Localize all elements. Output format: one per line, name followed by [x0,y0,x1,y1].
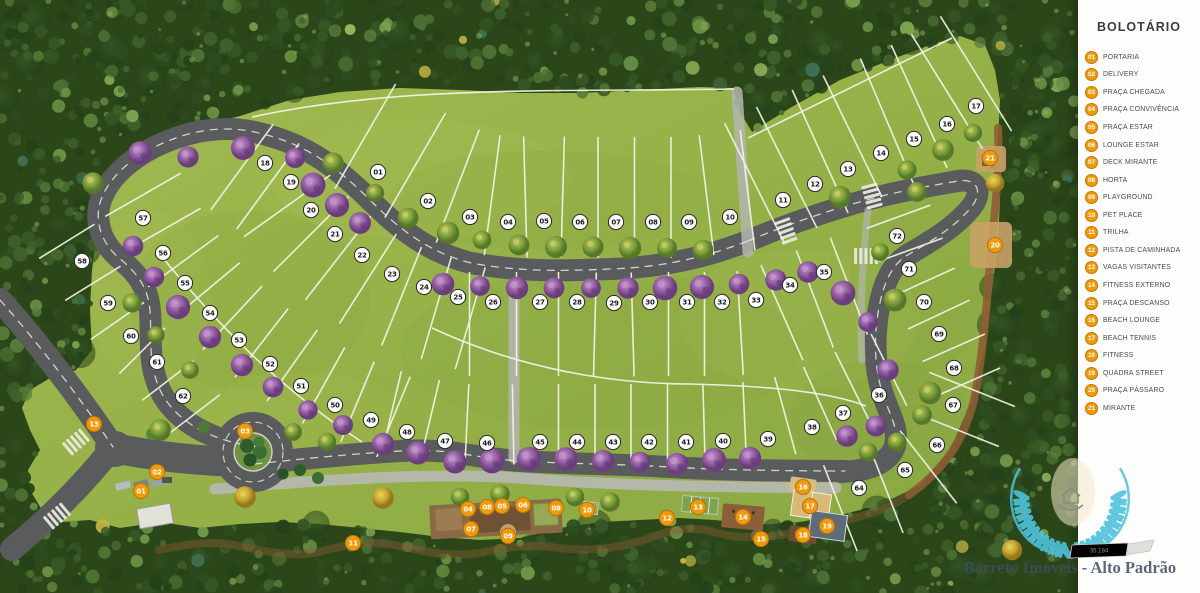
green-tree [932,139,954,161]
amenity-marker: 14 [735,509,750,524]
legend-badge: 04 [1085,103,1098,116]
legend-label: PRAÇA CONVIVÊNCIA [1103,106,1179,113]
green-tree [907,182,927,202]
legend-item: 07DECK MIRANTE [1085,156,1157,169]
purple-tree [544,278,565,299]
legend-item: 08HORTA [1085,174,1127,187]
lot-marker: 43 [605,434,620,449]
lot-marker: 66 [929,437,944,452]
lot-marker: 62 [175,388,190,403]
svg-text:55: 55 [180,279,190,287]
amenity-marker: 04 [460,501,475,516]
lot-marker: 45 [532,434,547,449]
legend-item: 20PRAÇA PÁSSARO [1085,384,1164,397]
legend-item: 16BEACH LOUNGE [1085,314,1160,327]
svg-text:18: 18 [798,531,808,539]
green-tree [912,405,932,425]
green-tree [919,382,941,404]
purple-tree [372,433,394,455]
svg-text:22: 22 [357,251,367,259]
legend-item: 03PRAÇA CHEGADA [1085,86,1165,99]
legend-item: 09PLAYGROUND [1085,191,1153,204]
purple-tree [123,236,144,257]
green-tree [693,240,714,261]
svg-text:69: 69 [934,330,944,338]
lot-marker: 13 [840,161,855,176]
purple-tree [858,312,878,332]
purple-tree [630,452,651,473]
legend-label: QUADRA STREET [1103,370,1164,377]
green-tree [284,423,302,441]
lot-marker: 23 [384,266,399,281]
amenity-marker: 08 [479,499,494,514]
amenity-marker: 13 [86,416,101,431]
lot-marker: 09 [681,214,696,229]
purple-tree [166,295,190,319]
svg-text:51: 51 [296,382,306,390]
purple-tree [592,450,614,472]
lot-marker: 42 [641,434,656,449]
legend-badge: 20 [1085,384,1098,397]
amenity-marker: 06 [515,497,530,512]
amenity-marker: 15 [753,531,768,546]
purple-tree [128,141,151,164]
lot-marker: 04 [500,214,515,229]
lot-marker: 53 [231,332,246,347]
svg-text:38: 38 [807,423,817,431]
lot-marker: 29 [606,295,621,310]
svg-text:04: 04 [503,218,513,226]
svg-text:11: 11 [778,196,788,204]
svg-text:04: 04 [463,505,473,513]
legend-label: PLAYGROUND [1103,194,1153,201]
svg-text:40: 40 [718,437,728,445]
lot-marker: 57 [135,210,150,225]
svg-text:17: 17 [805,502,815,510]
svg-text:23: 23 [387,270,397,278]
lot-marker: 47 [437,433,452,448]
purple-tree [432,273,455,296]
purple-tree [470,276,490,296]
svg-text:19: 19 [822,522,832,530]
svg-text:54: 54 [205,309,215,317]
svg-text:53: 53 [234,336,244,344]
svg-text:02: 02 [152,468,162,476]
purple-tree [506,277,528,299]
yellow-tree [234,486,256,508]
legend-item: 19QUADRA STREET [1085,367,1164,380]
legend-item: 14FITNESS EXTERNO [1085,279,1170,292]
svg-text:12: 12 [662,514,672,522]
svg-text:15: 15 [909,135,919,143]
yellow-tree [372,487,393,508]
amenity-marker: 17 [802,498,817,513]
green-tree [888,433,907,452]
svg-text:06: 06 [575,218,585,226]
amenity-marker: 02 [149,464,164,479]
lot-marker: 65 [897,462,912,477]
lot-marker: 69 [931,326,946,341]
legend-item: 21MIRANTE [1085,402,1135,415]
svg-text:60: 60 [126,332,136,340]
legend-item: 17BEACH TENNIS [1085,332,1156,345]
svg-text:06: 06 [518,501,528,509]
svg-text:21: 21 [330,230,340,238]
svg-text:59: 59 [103,299,113,307]
amenity-marker: 16 [795,479,810,494]
svg-text:48: 48 [402,428,412,436]
green-tree [473,231,492,250]
svg-text:16: 16 [942,120,952,128]
svg-text:18: 18 [260,159,270,167]
svg-text:07: 07 [466,525,476,533]
green-tree [437,222,460,245]
purple-tree [617,277,638,298]
legend-badge: 08 [1085,174,1098,187]
legend-label: PORTARIA [1103,54,1139,61]
site-plan-map: 0102030405060708091011121314151617181920… [0,0,1078,593]
svg-text:08: 08 [551,504,561,512]
legend-badge: 19 [1085,367,1098,380]
legend-item: 06LOUNGE ESTAR [1085,139,1159,152]
svg-text:24: 24 [419,283,429,291]
svg-text:02: 02 [423,197,433,205]
svg-text:61: 61 [152,358,162,366]
lot-marker: 36 [871,387,886,402]
purple-tree [144,267,164,287]
purple-tree [298,400,317,419]
svg-text:72: 72 [892,232,902,240]
green-tree [859,443,878,462]
lot-marker: 14 [873,145,888,160]
purple-tree [581,278,601,298]
lot-marker: 31 [679,294,694,309]
lot-marker: 05 [536,213,551,228]
legend-badge: 01 [1085,51,1098,64]
legend-label: LOUNGE ESTAR [1103,142,1159,149]
svg-text:28: 28 [572,298,582,306]
lot-marker: 64 [851,480,866,495]
legend-badge: 06 [1085,139,1098,152]
lot-marker: 61 [149,354,164,369]
amenity-marker: 01 [133,483,148,498]
svg-text:08: 08 [648,218,658,226]
svg-text:20: 20 [306,206,316,214]
svg-text:08: 08 [482,503,492,511]
lot-marker: 37 [835,405,850,420]
svg-text:13: 13 [843,165,853,173]
lot-marker: 34 [782,277,797,292]
svg-text:09: 09 [503,532,513,540]
legend-item: 15PRAÇA DESCANSO [1085,297,1170,310]
lot-marker: 39 [760,431,775,446]
lot-marker: 55 [177,275,192,290]
lot-marker: 52 [262,356,277,371]
legend-item: 11TRILHA [1085,226,1129,239]
purple-tree [666,453,688,475]
yellow-tree [1002,540,1022,560]
purple-tree [333,415,353,435]
svg-text:42: 42 [644,438,654,446]
legend-item: 10PET PLACE [1085,209,1143,222]
legend-badge: 02 [1085,68,1098,81]
lot-marker: 10 [722,209,737,224]
svg-text:26: 26 [488,298,498,306]
svg-text:21: 21 [985,154,995,162]
svg-text:34: 34 [785,281,795,289]
legend-badge: 07 [1085,156,1098,169]
purple-tree [739,447,761,469]
lot-marker: 03 [462,209,477,224]
purple-tree [690,275,714,299]
svg-text:70: 70 [919,298,929,306]
lot-marker: 20 [303,202,318,217]
green-tree [122,293,141,312]
legend-label: PRAÇA ESTAR [1103,124,1153,131]
svg-text:35: 35 [819,268,829,276]
legend-badge: 03 [1085,86,1098,99]
lot-marker: 35 [816,264,831,279]
svg-text:27: 27 [535,298,545,306]
amenity-marker: 08 [548,500,563,515]
green-tree [829,186,851,208]
svg-text:10: 10 [725,213,735,221]
purple-tree [797,261,818,282]
lot-marker: 70 [916,294,931,309]
lot-marker: 22 [354,247,369,262]
svg-text:29: 29 [609,299,619,307]
legend-label: PRAÇA PÁSSARO [1103,387,1164,394]
svg-text:01: 01 [136,487,146,495]
purple-tree [480,449,505,474]
svg-text:13: 13 [89,420,99,428]
lot-marker: 21 [327,226,342,241]
svg-text:33: 33 [751,296,761,304]
purple-tree [285,148,305,168]
lot-marker: 68 [946,360,961,375]
lot-marker: 71 [901,261,916,276]
amenity-marker: 18 [795,527,810,542]
lot-marker: 50 [327,397,342,412]
amenity-marker: 20 [987,237,1002,252]
amenity-marker: 12 [659,510,674,525]
green-tree [322,152,343,173]
lot-marker: 15 [906,131,921,146]
svg-text:25: 25 [453,293,463,301]
svg-text:03: 03 [465,213,475,221]
svg-text:64: 64 [854,484,864,492]
lot-marker: 38 [804,419,819,434]
lot-marker: 27 [532,294,547,309]
amenity-marker: 13 [690,499,705,514]
lot-marker: 41 [678,434,693,449]
amenity-marker: 19 [819,518,834,533]
legend-badge: 12 [1085,244,1098,257]
lot-marker: 54 [202,305,217,320]
legend-label: DELIVERY [1103,71,1139,78]
legend-label: PET PLACE [1103,212,1143,219]
amenity-marker: 11 [345,535,360,550]
purple-tree [554,447,578,471]
svg-text:65: 65 [900,466,910,474]
purple-tree [729,274,750,295]
lot-marker: 33 [748,292,763,307]
green-tree [657,238,677,258]
purple-tree [702,448,726,472]
svg-text:66: 66 [932,441,942,449]
legend-panel: BOLOTÁRIO 01PORTARIA02DELIVERY03PRAÇA CH… [1078,0,1200,593]
lot-marker: 02 [420,193,435,208]
lot-marker: 11 [775,192,790,207]
lot-marker: 12 [807,176,822,191]
legend-item: 02DELIVERY [1085,68,1139,81]
svg-text:11: 11 [348,539,358,547]
legend-badge: 10 [1085,209,1098,222]
legend-label: VAGAS VISITANTES [1103,264,1171,271]
purple-tree [877,359,898,380]
svg-text:68: 68 [949,364,959,372]
green-tree [871,243,889,261]
svg-text:45: 45 [535,438,545,446]
legend-badge: 15 [1085,297,1098,310]
svg-text:14: 14 [738,513,748,521]
lot-marker: 32 [714,294,729,309]
legend-label: HORTA [1103,177,1127,184]
svg-text:01: 01 [373,168,383,176]
green-tree [366,184,384,202]
svg-text:14: 14 [876,149,886,157]
svg-text:30: 30 [645,298,655,306]
legend-item: 01PORTARIA [1085,51,1139,64]
legend-badge: 09 [1085,191,1098,204]
green-tree [509,235,530,256]
svg-text:52: 52 [265,360,275,368]
svg-text:46: 46 [482,439,492,447]
svg-text:37: 37 [838,409,848,417]
lot-marker: 58 [74,253,89,268]
green-tree [181,361,199,379]
lot-marker: 28 [569,294,584,309]
legend-item: 05PRAÇA ESTAR [1085,121,1153,134]
legend-badge: 05 [1085,121,1098,134]
svg-text:44: 44 [572,438,582,446]
purple-tree [231,354,253,376]
legend-label: BEACH LOUNGE [1103,317,1160,324]
lot-marker: 18 [257,155,272,170]
purple-tree [349,212,371,234]
legend-label: DECK MIRANTE [1103,159,1157,166]
amenity-marker: 09 [500,528,515,543]
legend-item: 13VAGAS VISITANTES [1085,261,1171,274]
svg-text:56: 56 [158,249,168,257]
svg-text:05: 05 [539,217,549,225]
purple-tree [301,173,326,198]
lot-marker: 60 [123,328,138,343]
amenity-marker: 10 [579,502,594,517]
legend-label: BEACH TENNIS [1103,335,1156,342]
green-tree [884,289,907,312]
svg-text:50: 50 [330,401,340,409]
legend-badge: 13 [1085,261,1098,274]
lot-marker: 46 [479,435,494,450]
lot-marker: 49 [363,412,378,427]
purple-tree [831,281,856,306]
green-tree [147,326,164,343]
legend-label: MIRANTE [1103,405,1135,412]
lot-marker: 48 [399,424,414,439]
purple-tree [263,377,284,398]
legend-badge: 14 [1085,279,1098,292]
lot-marker: 56 [155,245,170,260]
svg-text:09: 09 [684,218,694,226]
legend-label: TRILHA [1103,229,1129,236]
lot-marker: 07 [608,214,623,229]
legend-item: 04PRAÇA CONVIVÊNCIA [1085,103,1179,116]
svg-text:12: 12 [810,180,820,188]
svg-text:71: 71 [904,265,914,273]
legend-badge: 21 [1085,402,1098,415]
purple-tree [444,451,467,474]
svg-text:32: 32 [717,298,727,306]
legend-badge: 16 [1085,314,1098,327]
svg-text:39: 39 [763,435,773,443]
lot-marker: 01 [370,164,385,179]
lot-marker: 08 [645,214,660,229]
svg-text:16: 16 [798,483,808,491]
svg-text:41: 41 [681,438,691,446]
svg-text:47: 47 [440,437,450,445]
legend-item: 18FITNESS [1085,349,1134,362]
purple-tree [325,193,349,217]
legend-label: FITNESS [1103,352,1134,359]
svg-text:49: 49 [366,416,376,424]
green-tree [600,492,619,511]
purple-tree [653,276,678,301]
lot-marker: 24 [416,279,431,294]
lot-marker: 44 [569,434,584,449]
legend-badge: 11 [1085,226,1098,239]
purple-tree [866,416,887,437]
svg-text:13: 13 [693,503,703,511]
green-tree [149,419,171,441]
lot-marker: 51 [293,378,308,393]
amenity-marker: 07 [463,521,478,536]
purple-tree [231,136,255,160]
green-tree [897,160,916,179]
legend-item: 12PISTA DE CAMINHADA [1085,244,1180,257]
amenity-marker: 05 [494,498,509,513]
svg-text:17: 17 [971,102,981,110]
lot-marker: 59 [100,295,115,310]
lot-marker: 06 [572,214,587,229]
amenity-marker: 21 [982,150,997,165]
svg-text:19: 19 [286,178,296,186]
svg-text:36: 36 [874,391,884,399]
legend-label: FITNESS EXTERNO [1103,282,1170,289]
green-tree [566,488,585,507]
purple-tree [199,326,221,348]
svg-text:15: 15 [756,535,766,543]
lot-marker: 40 [715,433,730,448]
svg-text:03: 03 [240,427,250,435]
green-tree [318,433,336,451]
masterplan-screenshot: 0102030405060708091011121314151617181920… [0,0,1200,593]
svg-text:67: 67 [948,401,958,409]
lot-marker: 25 [450,289,465,304]
svg-text:62: 62 [178,392,188,400]
lot-marker: 17 [968,98,983,113]
svg-text:57: 57 [138,214,148,222]
